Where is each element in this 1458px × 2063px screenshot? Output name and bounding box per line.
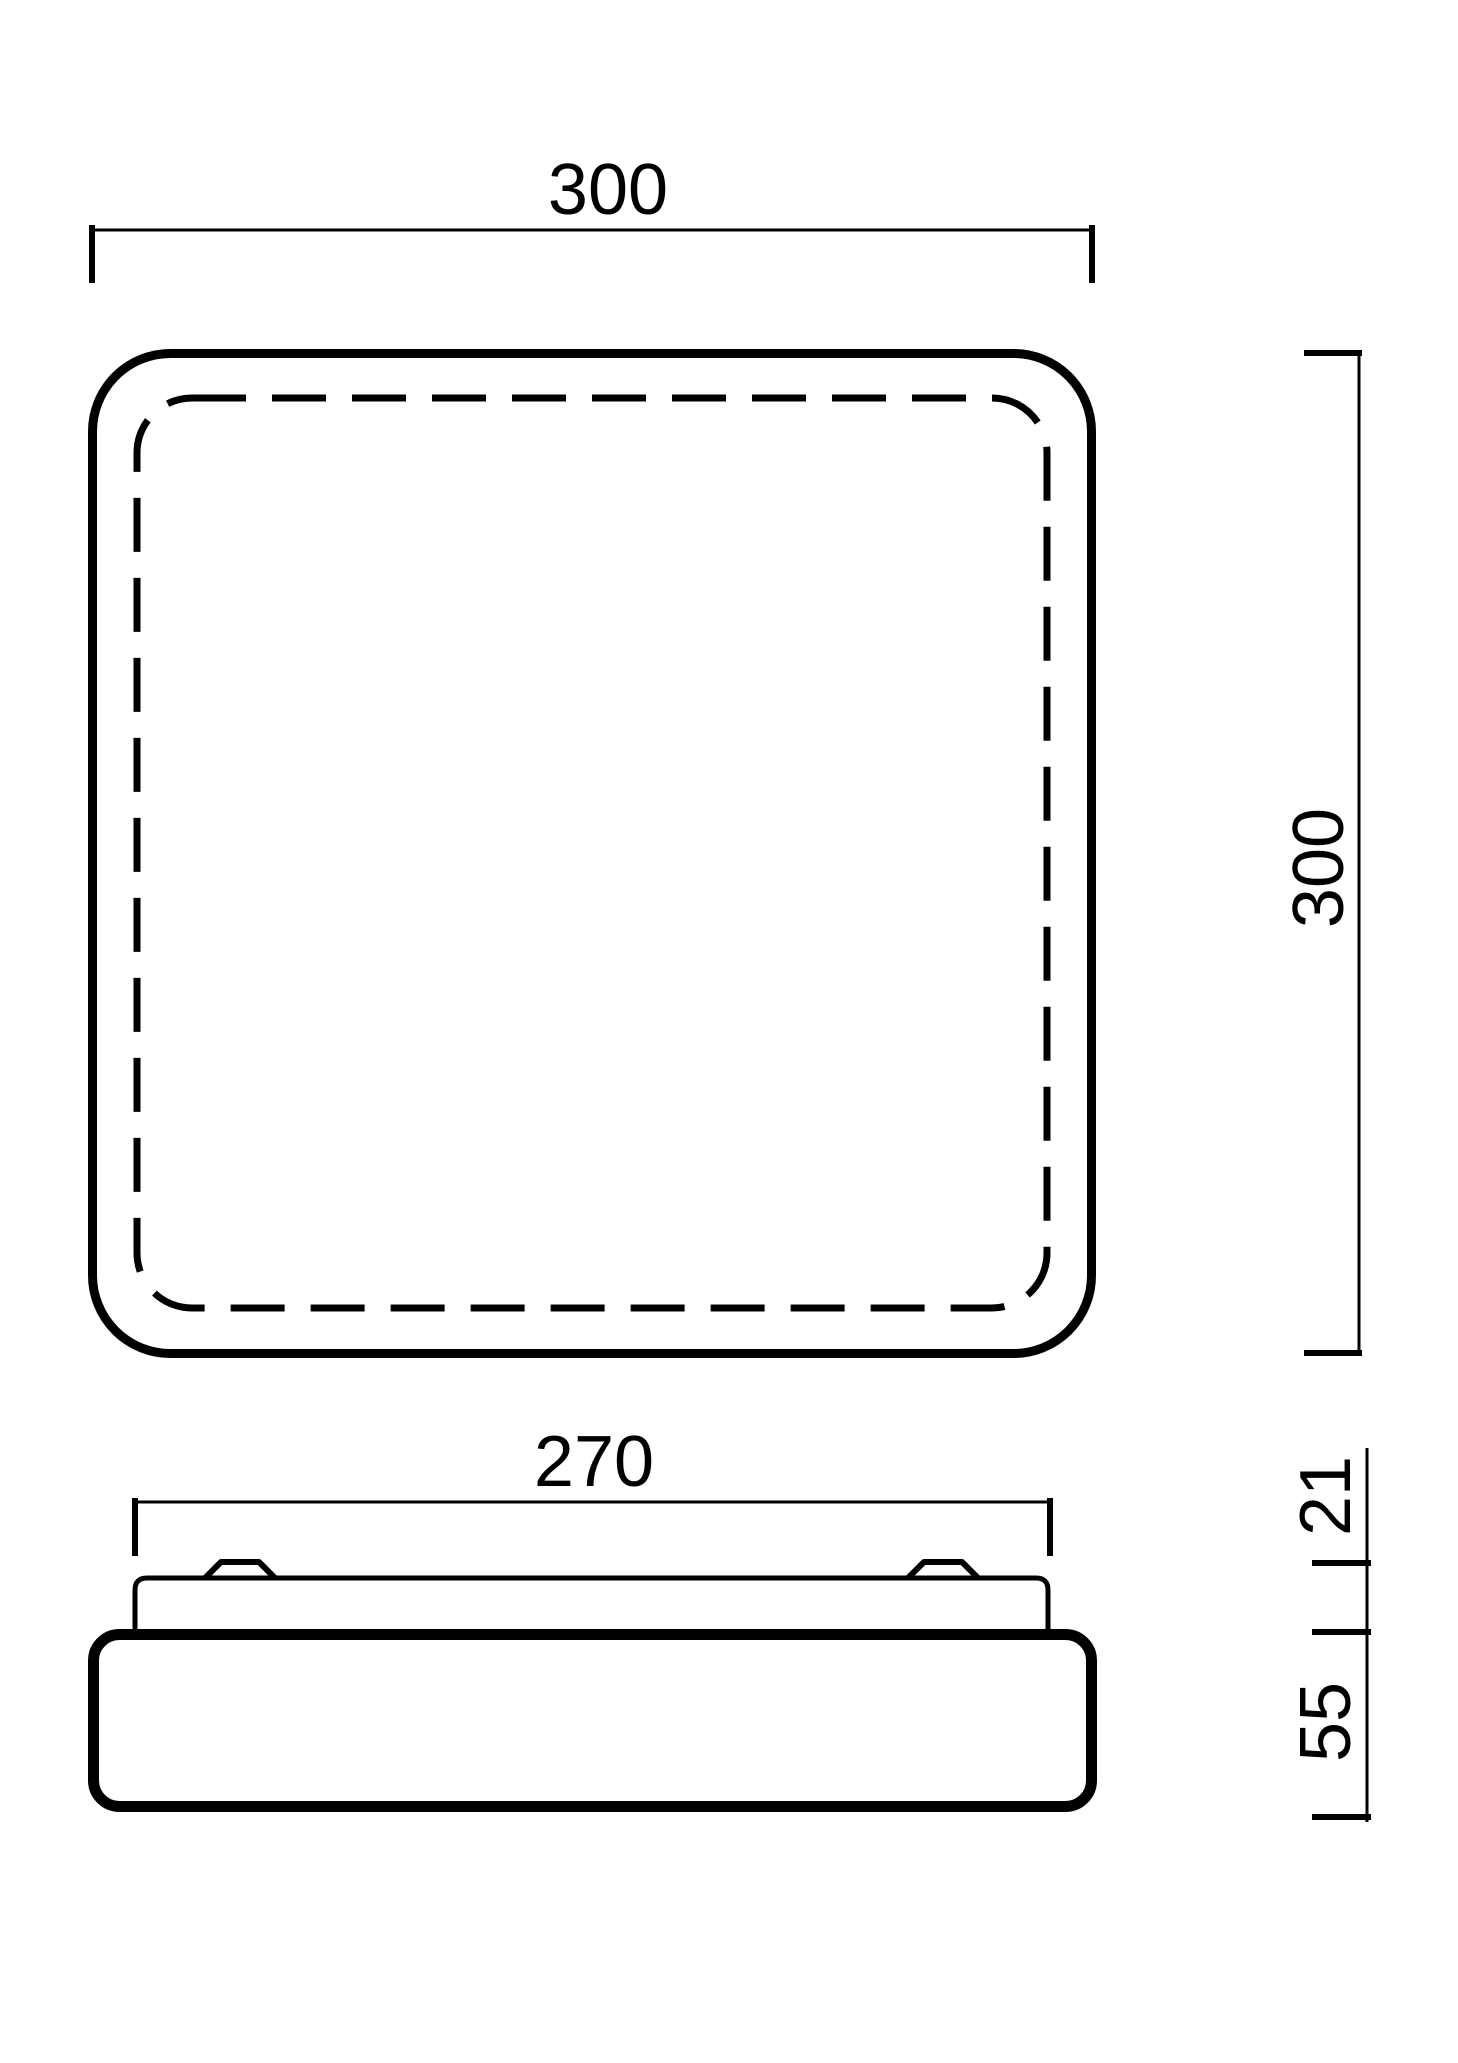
side-view-clip-right xyxy=(909,1562,977,1577)
dim-plan-height-label: 300 xyxy=(1279,808,1359,928)
luminaire-dimension-drawing: 300 300 270 xyxy=(0,0,1458,2063)
dim-top-width: 300 xyxy=(92,150,1092,283)
dim-plan-height: 300 xyxy=(1279,353,1362,1353)
top-view-hidden-edge-dashed-outline xyxy=(137,398,1047,1308)
dim-side-width-label: 270 xyxy=(534,1422,654,1502)
top-view-outer-outline xyxy=(93,354,1092,1354)
dim-side-width: 270 xyxy=(135,1422,1050,1556)
side-view-diffuser-body xyxy=(94,1635,1092,1807)
dim-top-width-label: 300 xyxy=(548,150,668,230)
side-view xyxy=(94,1562,1092,1807)
side-view-clip-left xyxy=(206,1562,274,1577)
dim-side-heights: 21 55 xyxy=(1286,1448,1371,1822)
top-view xyxy=(93,354,1092,1354)
technical-drawing-sheet: 300 300 270 xyxy=(0,0,1458,2063)
dim-body-height-label: 55 xyxy=(1286,1682,1366,1762)
dim-upper-height-label: 21 xyxy=(1286,1456,1366,1536)
